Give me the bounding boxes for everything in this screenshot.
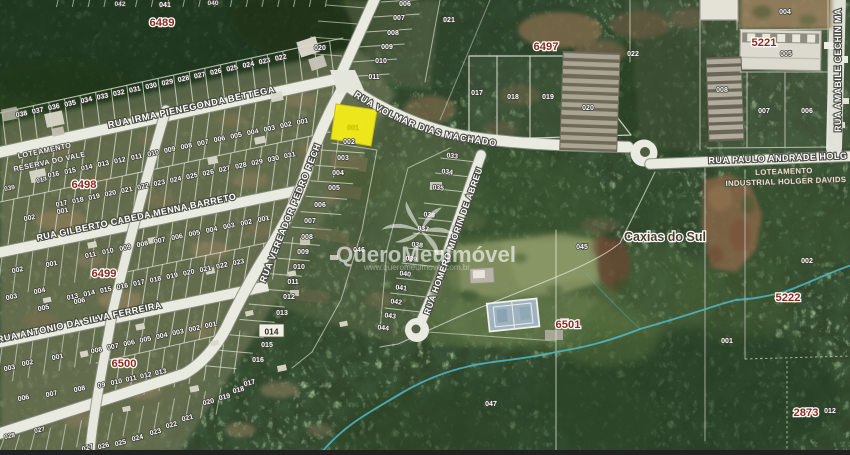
svg-text:010: 010 xyxy=(293,264,305,271)
svg-text:045: 045 xyxy=(576,244,588,251)
svg-text:043: 043 xyxy=(384,312,396,320)
svg-text:www.queromeuimovel.com.br: www.queromeuimovel.com.br xyxy=(363,262,470,272)
svg-text:022: 022 xyxy=(627,51,639,58)
svg-text:004: 004 xyxy=(332,170,344,177)
svg-text:044: 044 xyxy=(377,324,389,332)
svg-text:6497: 6497 xyxy=(534,41,559,53)
svg-text:014: 014 xyxy=(265,327,279,337)
svg-text:034: 034 xyxy=(441,168,453,176)
svg-text:020: 020 xyxy=(314,45,326,52)
svg-text:6500: 6500 xyxy=(112,358,137,370)
svg-text:018: 018 xyxy=(507,94,519,101)
svg-text:004: 004 xyxy=(779,9,791,16)
svg-text:001: 001 xyxy=(721,338,733,345)
svg-text:005: 005 xyxy=(328,185,340,192)
svg-text:006: 006 xyxy=(801,108,813,115)
svg-text:011: 011 xyxy=(368,74,379,81)
svg-text:047: 047 xyxy=(485,401,497,408)
svg-text:035: 035 xyxy=(432,184,444,192)
svg-text:017: 017 xyxy=(471,90,483,97)
svg-text:042: 042 xyxy=(114,1,125,8)
svg-text:042: 042 xyxy=(390,298,402,306)
svg-text:008: 008 xyxy=(301,234,313,241)
svg-text:012: 012 xyxy=(283,294,295,301)
svg-text:021: 021 xyxy=(443,17,455,24)
svg-text:009: 009 xyxy=(381,44,393,51)
svg-text:Caxias do Sul: Caxias do Sul xyxy=(624,230,706,244)
svg-text:007: 007 xyxy=(304,218,316,225)
svg-text:020: 020 xyxy=(582,105,594,112)
svg-text:5221: 5221 xyxy=(752,37,777,49)
svg-text:012: 012 xyxy=(824,408,836,415)
svg-text:009: 009 xyxy=(297,249,309,256)
svg-text:6499: 6499 xyxy=(92,268,117,280)
svg-text:005: 005 xyxy=(780,51,792,58)
svg-text:RUA AMABILE CECHIN MA: RUA AMABILE CECHIN MA xyxy=(833,8,843,132)
svg-text:015: 015 xyxy=(261,342,273,349)
svg-text:041: 041 xyxy=(395,284,407,292)
svg-text:010: 010 xyxy=(375,58,387,65)
svg-text:040: 040 xyxy=(207,0,218,7)
svg-text:002: 002 xyxy=(801,258,813,265)
svg-text:007: 007 xyxy=(393,15,405,22)
svg-text:002: 002 xyxy=(343,139,355,146)
svg-text:006: 006 xyxy=(399,1,411,8)
svg-text:019: 019 xyxy=(542,94,554,101)
svg-text:003: 003 xyxy=(337,155,349,162)
svg-text:007: 007 xyxy=(758,108,770,115)
svg-text:016: 016 xyxy=(252,357,264,364)
svg-text:6501: 6501 xyxy=(556,319,581,331)
svg-text:2873: 2873 xyxy=(794,407,819,419)
svg-text:008: 008 xyxy=(716,87,728,94)
svg-text:041: 041 xyxy=(159,2,171,9)
svg-text:5222: 5222 xyxy=(776,292,801,304)
svg-text:011: 011 xyxy=(287,279,298,286)
svg-text:013: 013 xyxy=(276,310,288,317)
svg-text:6489: 6489 xyxy=(150,17,175,29)
svg-text:008: 008 xyxy=(387,30,399,37)
svg-text:6498: 6498 xyxy=(72,179,97,191)
svg-text:033: 033 xyxy=(446,152,458,160)
svg-text:001: 001 xyxy=(347,125,359,132)
svg-text:006: 006 xyxy=(314,202,326,209)
